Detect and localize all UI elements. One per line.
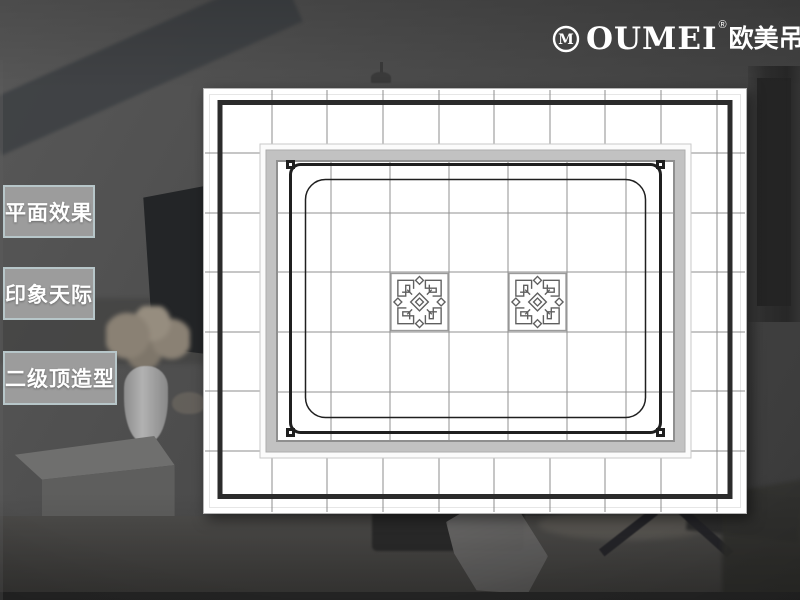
second-level-panel xyxy=(260,144,691,458)
sidebar-item-impression-sky[interactable]: 印象天际 xyxy=(3,267,95,320)
registered-mark: ® xyxy=(718,19,726,31)
white-vase xyxy=(124,366,168,442)
photo-bottom-edge xyxy=(0,592,800,600)
sidebar-item-label: 印象天际 xyxy=(5,279,93,309)
sidebar-item-plan-effect[interactable]: 平面效果 xyxy=(3,185,95,238)
wall-corner-highlight xyxy=(0,60,3,600)
sidebar-item-second-level-shape[interactable]: 二级顶造型 xyxy=(3,351,117,405)
sidebar-item-label: 平面效果 xyxy=(5,197,93,227)
slide: 平面效果 印象天际 二级顶造型 M OUMEI ® 欧美吊顶 xyxy=(0,0,800,600)
ceiling-lamp-shade xyxy=(371,72,391,83)
flower-bouquet xyxy=(106,306,190,372)
ornament-tile xyxy=(391,273,448,330)
recess-field xyxy=(277,161,674,441)
sidebar-item-label: 二级顶造型 xyxy=(5,363,115,393)
brand-name-latin: OUMEI xyxy=(586,24,717,55)
brand-name-cjk: 欧美吊顶 xyxy=(729,27,800,52)
teapot-silhouette xyxy=(172,392,206,414)
ornament-tile xyxy=(509,273,566,330)
brand-logo: M OUMEI ® 欧美吊顶 xyxy=(552,20,800,58)
svg-text:M: M xyxy=(558,32,574,48)
ceiling-plan-drawing xyxy=(203,88,747,514)
oumei-monogram-icon: M xyxy=(552,25,580,53)
right-door-panel xyxy=(757,78,791,306)
